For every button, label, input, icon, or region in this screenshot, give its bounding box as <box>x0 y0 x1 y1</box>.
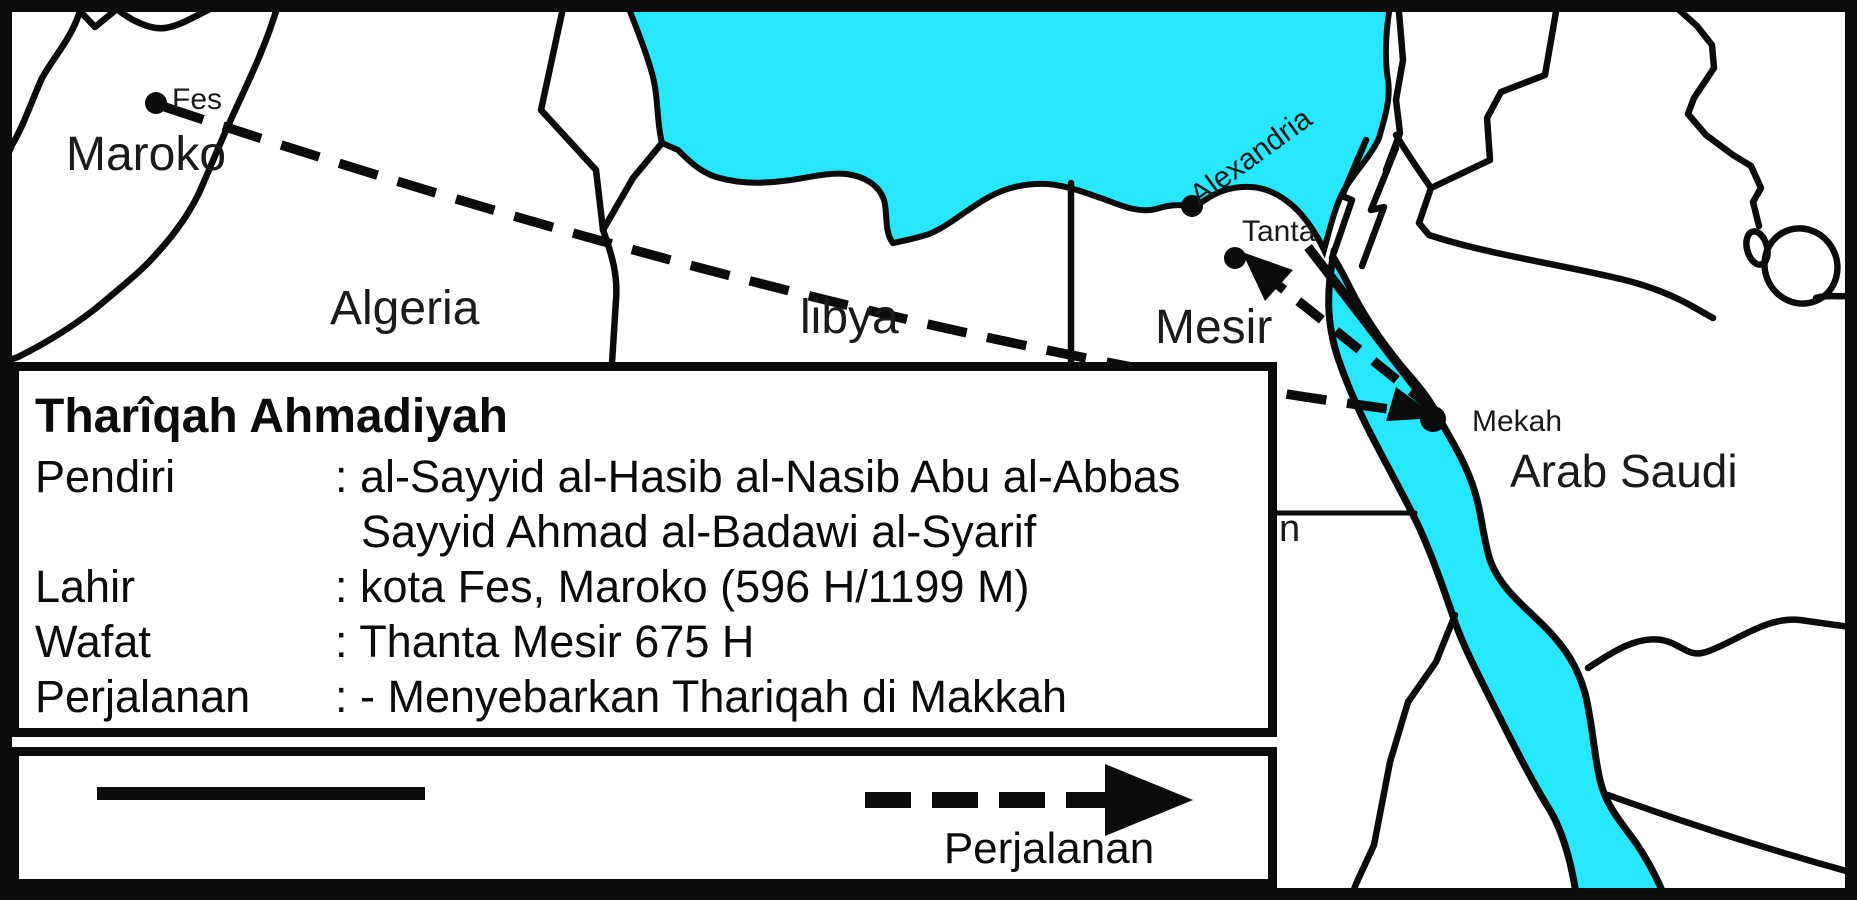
info-row-pendiri: Pendiri : al-Sayyid al-Hasib al-Nasib Ab… <box>19 449 1268 504</box>
fes-marker <box>145 92 167 114</box>
city-label-tanta: Tanta <box>1242 216 1315 248</box>
info-row-value: : kota Fes, Maroko (596 H/1199 M) <box>335 559 1268 614</box>
legend-journey-label: Perjalanan <box>889 824 1209 874</box>
algeria-libya-border <box>603 230 616 363</box>
info-row-label: Pendiri <box>35 449 335 504</box>
city-label-fes: Fes <box>172 84 222 116</box>
info-row-wafat: Wafat : Thanta Mesir 675 H <box>19 614 1268 669</box>
arrowhead-at-tanta <box>1242 252 1293 301</box>
tunisia-border-branch <box>603 143 662 230</box>
mekah-marker <box>1420 406 1446 432</box>
country-label-mesir: Mesir <box>1155 303 1272 353</box>
info-row-value: : - Menyebarkan Thariqah di Makkah <box>335 669 1268 724</box>
info-row-value: : Thanta Mesir 675 H <box>335 614 1268 669</box>
morocco-coast-notch <box>77 8 117 27</box>
solid-line-icon <box>97 787 425 800</box>
country-label-libya: libya <box>800 293 899 343</box>
country-label-algeria: Algeria <box>330 284 479 334</box>
info-row-value: : al-Sayyid al-Hasib al-Nasib Abu al-Abb… <box>335 449 1268 504</box>
morocco-north-coast <box>117 8 212 28</box>
info-box: Tharîqah Ahmadiyah Pendiri : al-Sayyid a… <box>10 362 1277 737</box>
info-row-pendiri-cont: Sayyid Ahmad al-Badawi al-Syarif <box>19 504 1268 559</box>
info-row-label <box>35 504 335 559</box>
info-row-value: Sayyid Ahmad al-Badawi al-Syarif <box>335 504 1268 559</box>
city-label-mekah: Mekah <box>1472 406 1562 438</box>
country-label-sudan-fragment: n <box>1279 510 1300 550</box>
country-label-maroko: Maroko <box>66 130 226 180</box>
syria-iraq-saudi-border <box>1419 6 1713 318</box>
info-row-perjalanan: Perjalanan : - Menyebarkan Thariqah di M… <box>19 669 1268 724</box>
info-row-label: Perjalanan <box>35 669 335 724</box>
tanta-marker <box>1224 247 1246 269</box>
info-row-label: Wafat <box>35 614 335 669</box>
iraq-iran-border <box>1677 8 1761 226</box>
persian-gulf-head <box>1751 216 1850 317</box>
sudan-eritrea-border <box>1350 615 1455 900</box>
info-row-lahir: Lahir : kota Fes, Maroko (596 H/1199 M) <box>19 559 1268 614</box>
gulf-coast <box>1816 295 1857 298</box>
info-row-label: Lahir <box>35 559 335 614</box>
tunisia-border <box>541 8 603 230</box>
legend-box: Perjalanan <box>10 747 1277 888</box>
info-box-title: Tharîqah Ahmadiyah <box>35 391 1268 443</box>
saudi-yemen-border <box>1588 620 1857 668</box>
israel-syria-link <box>1396 135 1431 188</box>
country-label-arab-saudi: Arab Saudi <box>1510 447 1738 495</box>
map-figure: Maroko Fes Algeria libya Mesir Alexandri… <box>0 0 1857 900</box>
